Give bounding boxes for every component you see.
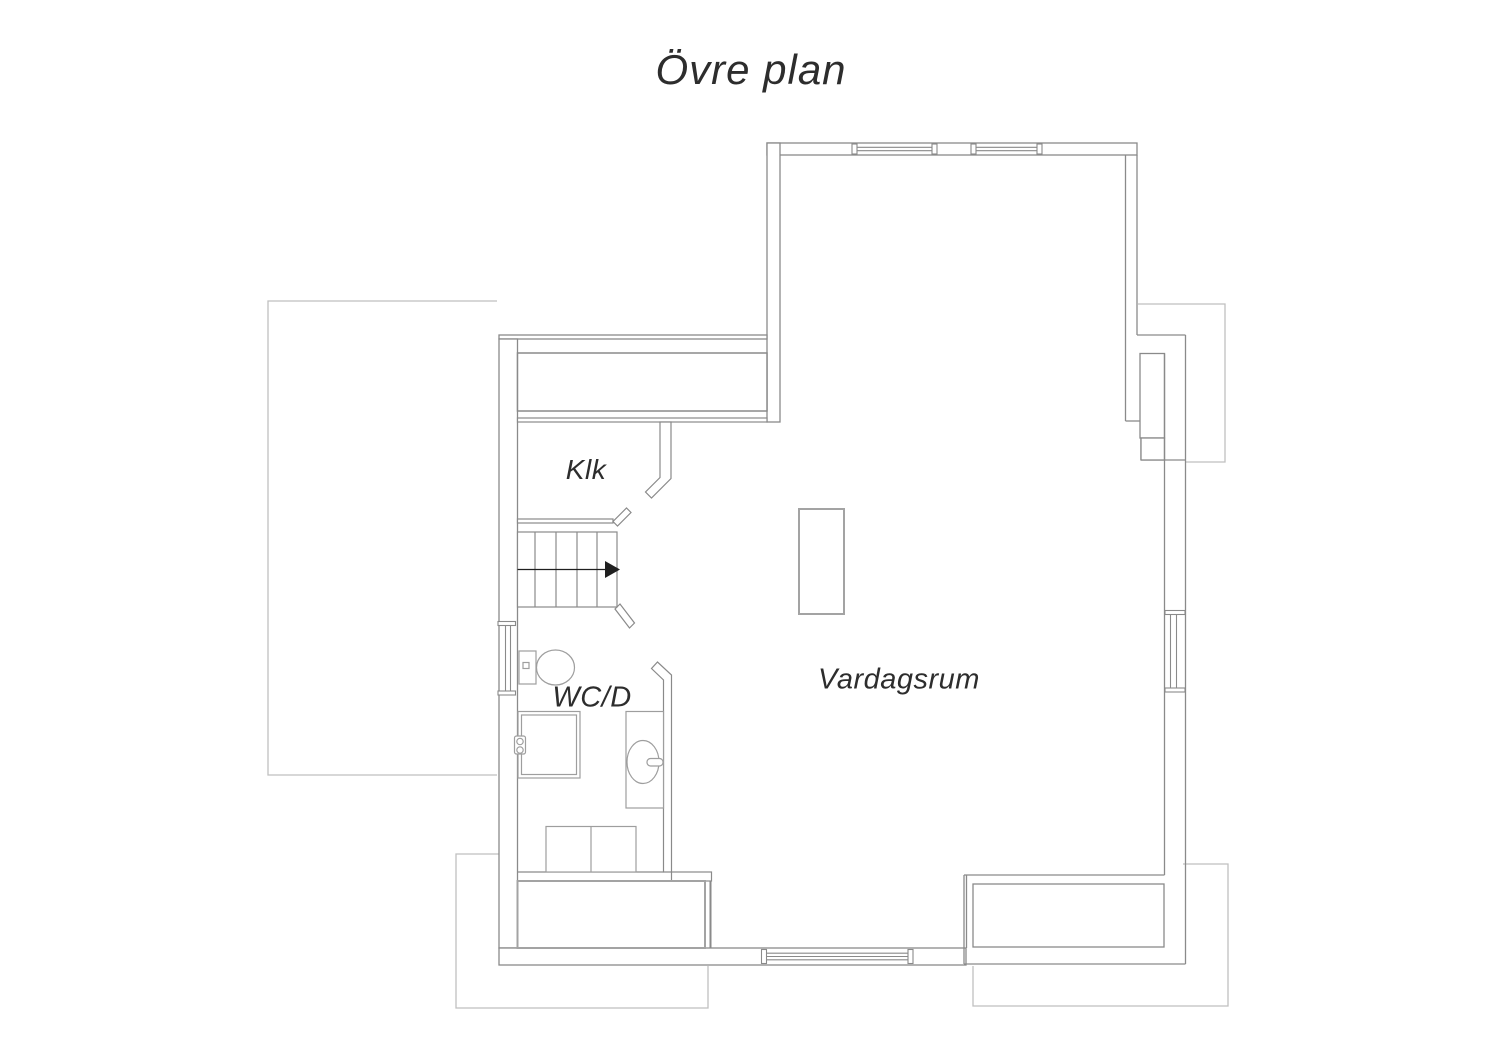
klk-south-wall	[518, 519, 614, 523]
balcony	[964, 875, 1186, 964]
sink-faucet	[647, 759, 663, 767]
roof-left	[268, 301, 497, 775]
wardrobe-unit	[518, 353, 768, 411]
door-jamb-klk	[613, 508, 631, 526]
room-label-klk: Klk	[566, 454, 606, 486]
windows-segment	[1165, 688, 1185, 692]
windows-segment	[1037, 144, 1042, 154]
closet-front	[518, 418, 768, 422]
room-label-vardagsrum: Vardagsrum	[818, 664, 980, 697]
fixtures-segment	[522, 715, 577, 775]
toilet-bowl	[537, 650, 575, 685]
roof-bottom-right	[973, 864, 1228, 1006]
storage-closet	[518, 881, 706, 948]
roof-bottom-left	[456, 854, 708, 1008]
page-title: Övre plan	[655, 46, 846, 94]
wall-west	[499, 339, 518, 948]
toilet-button	[523, 663, 529, 669]
windows-segment	[498, 691, 516, 695]
room-label-wcd: WC/D	[552, 682, 631, 715]
door-jamb-stairs	[615, 604, 635, 628]
floorplan-page: Övre plan Klk WC/D Vardagsrum	[0, 0, 1500, 1060]
window-west-cap	[498, 622, 516, 626]
chimney-shaft	[1140, 354, 1165, 439]
window-bottom-cap	[762, 950, 767, 964]
interior-walls-segment	[672, 872, 712, 881]
island-furniture	[799, 509, 844, 614]
exterior-walls-segment	[1141, 438, 1165, 460]
window-top-2-cap	[971, 144, 976, 154]
floorplan-svg	[0, 0, 1500, 1060]
window-top-1-cap	[852, 144, 857, 154]
wall-top	[767, 143, 1137, 155]
wall-west-wing-top	[499, 335, 767, 339]
balcony-floor	[973, 884, 1164, 947]
klk-east-wall	[646, 422, 672, 498]
fixtures-segment	[517, 738, 523, 744]
stairs	[518, 532, 621, 607]
windows-segment	[908, 950, 913, 964]
window-east-cap	[1165, 611, 1185, 615]
fixtures-segment	[517, 747, 523, 753]
wall-upper-west	[767, 143, 780, 422]
windows-segment	[932, 144, 937, 154]
